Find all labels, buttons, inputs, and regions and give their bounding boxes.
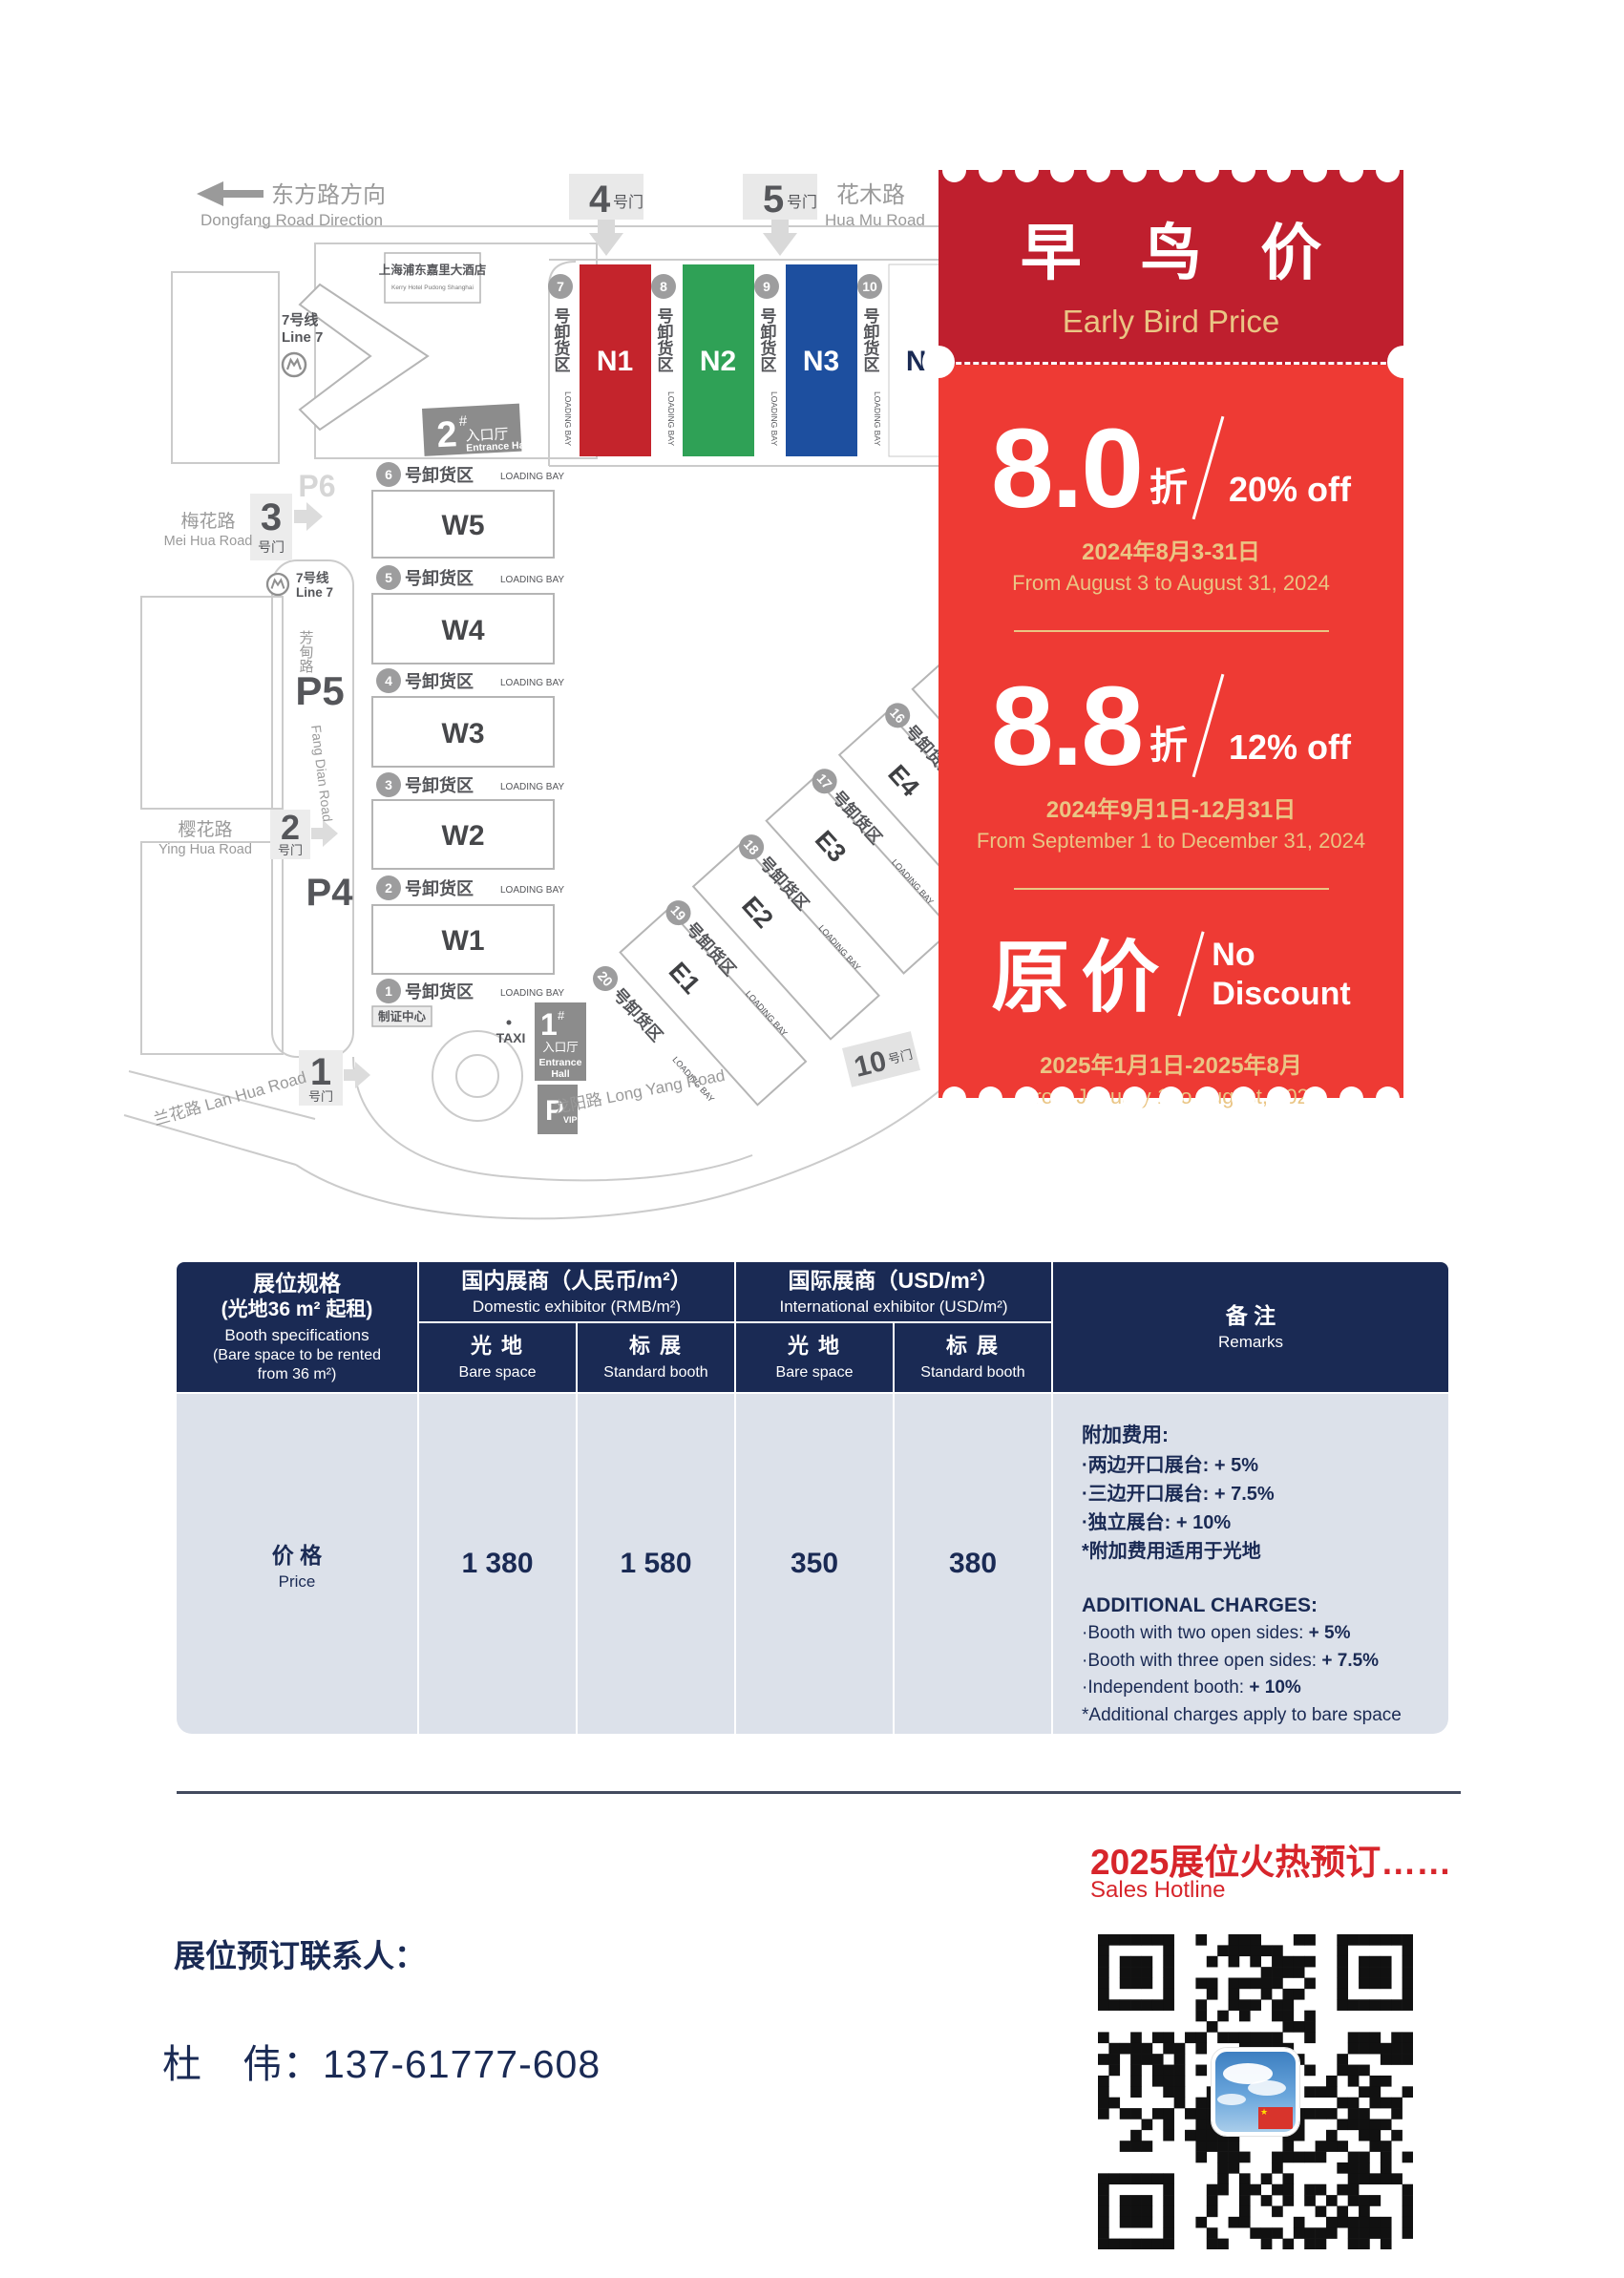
svg-text:LOADING BAY: LOADING BAY (500, 472, 564, 482)
wechat-qr-code: ★ (1098, 1934, 1413, 2249)
remark-item: *附加费用适用于光地 (1082, 1537, 1424, 1566)
svg-text:8: 8 (660, 279, 667, 294)
discount-unit: 折 (1149, 714, 1188, 770)
remark-item: ·两边开口展台: + 5% (1082, 1451, 1424, 1480)
svg-text:LOADING BAY: LOADING BAY (500, 678, 564, 688)
scallop-edge-bottom (942, 1086, 1400, 1110)
svg-text:9: 9 (763, 279, 770, 294)
remark-item: ·Independent booth: + 10% (1082, 1675, 1424, 1702)
col-header-booth-spec: 展位规格 (光地36 m² 起租) Booth specifications (… (177, 1262, 417, 1392)
sub-header-intl-standard: 标 展 Standard booth (895, 1323, 1051, 1392)
metro-line7b-cn: 7号线 (296, 570, 329, 585)
remark-item: *Additional charges apply to bare space (1082, 1702, 1424, 1730)
remark-item: ·Booth with three open sides: + 7.5% (1082, 1648, 1424, 1676)
early-bird-coupon: 早 鸟 价 Early Bird Price 8.0 折 20% off 202… (939, 170, 1403, 1098)
parking-p5: P5 (295, 668, 344, 713)
svg-text:2: 2 (281, 808, 300, 847)
no-discount-label: No Discount (1212, 936, 1350, 1014)
poster-page: 东方路方向 Dongfang Road Direction 4 号门 5 号门 … (0, 0, 1624, 2278)
slash-divider (1192, 674, 1225, 777)
svg-text:号卸货区: 号卸货区 (655, 307, 674, 372)
parking-p4: P4 (306, 872, 354, 914)
svg-text:号卸货区: 号卸货区 (861, 307, 880, 372)
price-intl-bare: 350 (736, 1394, 893, 1734)
svg-text:号门: 号门 (258, 539, 285, 555)
taxi-label: TAXI (496, 1030, 526, 1045)
svg-text:1: 1 (540, 1007, 558, 1042)
hotel-label-box (385, 253, 480, 303)
discount-value: 8.0 (991, 417, 1142, 521)
badge-center: 制证中心 (372, 1006, 432, 1026)
svg-text:号卸货区: 号卸货区 (405, 878, 474, 898)
svg-text:3: 3 (261, 496, 282, 538)
remark-item: ·独立展台: + 10% (1082, 1508, 1424, 1537)
hall-label-w5: W5 (442, 510, 485, 541)
metro-logo-icon (283, 353, 306, 376)
svg-text:4: 4 (385, 673, 392, 688)
discount-percent: 20% off (1229, 470, 1351, 510)
svg-text:LOADING BAY: LOADING BAY (500, 885, 564, 896)
svg-text:制证中心: 制证中心 (378, 1009, 427, 1023)
svg-text:10: 10 (862, 279, 877, 294)
remarks-body: 附加费用: ·两边开口展台: + 5% ·三边开口展台: + 7.5% ·独立展… (1053, 1394, 1448, 1734)
svg-text:号门: 号门 (278, 843, 303, 857)
svg-text:号卸货区: 号卸货区 (758, 307, 777, 372)
gold-separator (1014, 888, 1329, 890)
tier2-date-en: From September 1 to December 31, 2024 (939, 829, 1403, 854)
cloud-icon (1217, 2094, 1246, 2105)
road-label-yinghua-en: Ying Hua Road (158, 842, 252, 857)
discount-value: 8.8 (991, 675, 1142, 779)
svg-text:号门: 号门 (613, 194, 643, 211)
price-dom-standard: 1 580 (578, 1394, 734, 1734)
svg-text:LOADING BAY: LOADING BAY (563, 391, 573, 446)
gold-separator (1014, 630, 1329, 632)
price-table: 展位规格 (光地36 m² 起租) Booth specifications (… (177, 1262, 1448, 1734)
road-label-meihua-cn: 梅花路 (180, 511, 235, 532)
remark-item: ·Booth with two open sides: + 5% (1082, 1620, 1424, 1648)
road-label-huamu-en: Hua Mu Road (825, 211, 925, 229)
hall-label-n3: N3 (803, 346, 839, 377)
hall-label-w4: W4 (442, 615, 485, 646)
group-header-international: 国际展商（USD/m²） International exhibitor (US… (736, 1262, 1051, 1321)
hall-label-w2: W2 (442, 820, 485, 852)
svg-text:3: 3 (385, 777, 392, 792)
entrance-hall-1: 1 # 入口厅 Entrance Hall (535, 1002, 586, 1081)
svg-text:LOADING BAY: LOADING BAY (500, 988, 564, 999)
svg-text:2: 2 (385, 880, 392, 896)
qr-center-logo: ★ (1212, 2048, 1299, 2136)
cloud-icon (1248, 2080, 1286, 2096)
road-label-dongfang-cn: 东方路方向 (271, 182, 386, 208)
discount-percent: 12% off (1229, 728, 1351, 768)
gate-4-arrow-icon (589, 220, 623, 256)
col-header-remarks: 备 注 Remarks (1053, 1262, 1448, 1392)
entrance-hall-2: 2 # 入口厅 Entrance Hall (422, 403, 531, 456)
gate-10: 10 号门 (842, 1031, 920, 1087)
tier1-date-en: From August 3 to August 31, 2024 (939, 571, 1403, 596)
svg-text:号卸货区: 号卸货区 (405, 671, 474, 691)
tier3-date-cn: 2025年1月1日-2025年8月 (939, 1046, 1403, 1080)
svg-text:LOADING BAY: LOADING BAY (770, 391, 779, 446)
contact-phone: 杜 伟：137-61777-608 (162, 2032, 601, 2089)
coupon-notch-left (922, 346, 955, 378)
svg-text:号门: 号门 (308, 1089, 333, 1104)
road-label-fangdian-en: Fang Dian Road (308, 724, 335, 822)
group-header-domestic: 国内展商（人民币/m²） Domestic exhibitor (RMB/m²) (419, 1262, 734, 1321)
gate-5: 5 号门 (743, 174, 817, 256)
venue-map-svg: 东方路方向 Dongfang Road Direction 4 号门 5 号门 … (115, 162, 964, 1227)
gate-2-arrow-icon (311, 820, 338, 847)
slash-divider (1192, 416, 1225, 519)
svg-text:#: # (558, 1008, 565, 1023)
venue-map: 东方路方向 Dongfang Road Direction 4 号门 5 号门 … (115, 162, 964, 1227)
contact-label: 展位预订联系人： (174, 1930, 426, 1976)
svg-text:6: 6 (385, 467, 392, 482)
metro-line7-cn: 7号线 (282, 311, 318, 328)
svg-text:LOADING BAY: LOADING BAY (500, 575, 564, 585)
metro-line7-en: Line 7 (282, 329, 323, 346)
svg-text:号卸货区: 号卸货区 (405, 775, 474, 795)
sub-header-dom-bare: 光 地 Bare space (419, 1323, 576, 1392)
svg-text:#: # (458, 413, 468, 430)
discount-tier-2: 8.8 折 12% off 2024年9月1日-12月31日 From Sept… (939, 672, 1403, 854)
scallop-edge-top (942, 158, 1400, 182)
parking-p6: P6 (298, 469, 335, 503)
gate-5-arrow-icon (763, 220, 797, 256)
svg-text:LOADING BAY: LOADING BAY (500, 782, 564, 792)
road-label-lanhua: 兰花路 Lan Hua Road (152, 1068, 308, 1129)
footer-divider (177, 1791, 1461, 1794)
svg-text:号卸货区: 号卸货区 (405, 981, 474, 1002)
svg-text:1: 1 (385, 983, 392, 999)
hotline-subtitle: Sales Hotline (1090, 1877, 1225, 1904)
hall-label-w1: W1 (442, 925, 485, 957)
slash-divider (1178, 931, 1205, 1016)
remarks-cn-title: 附加费用: (1082, 1421, 1424, 1451)
coupon-notch-right (1387, 346, 1420, 378)
remark-item: ·三边开口展台: + 7.5% (1082, 1480, 1424, 1508)
discount-unit: 折 (1149, 456, 1188, 512)
svg-text:1: 1 (310, 1051, 331, 1093)
china-flag-icon: ★ (1258, 2107, 1293, 2129)
sub-header-dom-standard: 标 展 Standard booth (578, 1323, 734, 1392)
original-price-label: 原价 (991, 939, 1171, 1018)
svg-text:5: 5 (763, 179, 784, 221)
hotel-building-shape (300, 285, 428, 430)
road-label-fangdian-cn: 芳甸路 (298, 630, 314, 673)
gate-1-arrow-icon (344, 1062, 370, 1088)
sub-header-intl-bare: 光 地 Bare space (736, 1323, 893, 1392)
hall-label-n1: N1 (597, 346, 633, 377)
coupon-body: 8.0 折 20% off 2024年8月3-31日 From August 3… (939, 365, 1403, 1098)
coupon-header: 早 鸟 价 Early Bird Price (939, 170, 1403, 365)
svg-text:号门: 号门 (787, 194, 817, 211)
road-label-yinghua-cn: 樱花路 (178, 819, 232, 840)
svg-text:VIP: VIP (563, 1115, 578, 1125)
tier1-date-cn: 2024年8月3-31日 (939, 533, 1403, 566)
svg-text:Hall: Hall (551, 1068, 569, 1080)
svg-text:7: 7 (557, 279, 564, 294)
svg-text:号卸货区: 号卸货区 (405, 465, 474, 485)
svg-text:号卸货区: 号卸货区 (552, 307, 571, 372)
discount-tier-3: 原价 No Discount 2025年1月1日-2025年8月 From Ja… (939, 930, 1403, 1109)
svg-text:入口厅: 入口厅 (542, 1041, 579, 1054)
dongfang-direction-arrow-icon (197, 181, 264, 206)
svg-text:2: 2 (435, 414, 457, 455)
hall-label-n2: N2 (700, 346, 736, 377)
road-label-huamu-cn: 花木路 (836, 182, 905, 208)
svg-text:4: 4 (589, 179, 611, 221)
hotel-label-cn: 上海浦东嘉里大酒店 (379, 263, 487, 277)
gate-1: 1 号门 (299, 1050, 370, 1106)
discount-tier-1: 8.0 折 20% off 2024年8月3-31日 From August 3… (939, 365, 1403, 596)
tier2-date-cn: 2024年9月1日-12月31日 (939, 791, 1403, 824)
metro-logo-icon-2 (267, 574, 288, 595)
svg-text:LOADING BAY: LOADING BAY (666, 391, 676, 446)
hall-label-w3: W3 (442, 718, 485, 749)
price-intl-standard: 380 (895, 1394, 1051, 1734)
remarks-en-title: ADDITIONAL CHARGES: (1082, 1591, 1424, 1621)
svg-text:号卸货区: 号卸货区 (405, 568, 474, 588)
svg-text:LOADING BAY: LOADING BAY (873, 391, 882, 446)
svg-text:5: 5 (385, 570, 392, 585)
metro-line7b-en: Line 7 (296, 585, 333, 600)
taxi-dot-icon (507, 1021, 512, 1025)
gate-3: 3 号门 (250, 494, 323, 560)
hotel-label-en: Kerry Hotel Pudong Shanghai (391, 285, 474, 291)
coupon-title-en: Early Bird Price (939, 304, 1403, 340)
road-label-meihua-en: Mei Hua Road (164, 534, 253, 549)
svg-text:Entrance Hall: Entrance Hall (466, 439, 531, 453)
gate-3-arrow-icon (294, 502, 323, 531)
svg-text:Entrance: Entrance (539, 1057, 582, 1068)
coupon-title-cn: 早 鸟 价 (939, 170, 1403, 292)
row-header-price: 价 格 Price (177, 1394, 417, 1734)
road-label-dongfang-en: Dongfang Road Direction (200, 211, 383, 229)
price-dom-bare: 1 380 (419, 1394, 576, 1734)
